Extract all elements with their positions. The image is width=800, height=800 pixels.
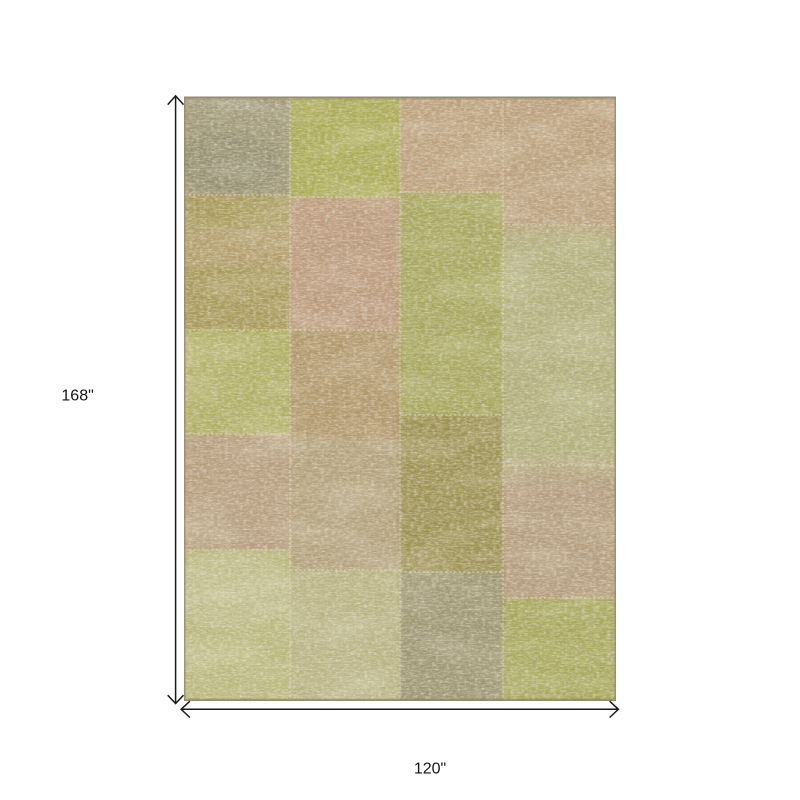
svg-text:120": 120" bbox=[414, 760, 446, 777]
svg-text:168": 168" bbox=[61, 388, 93, 405]
